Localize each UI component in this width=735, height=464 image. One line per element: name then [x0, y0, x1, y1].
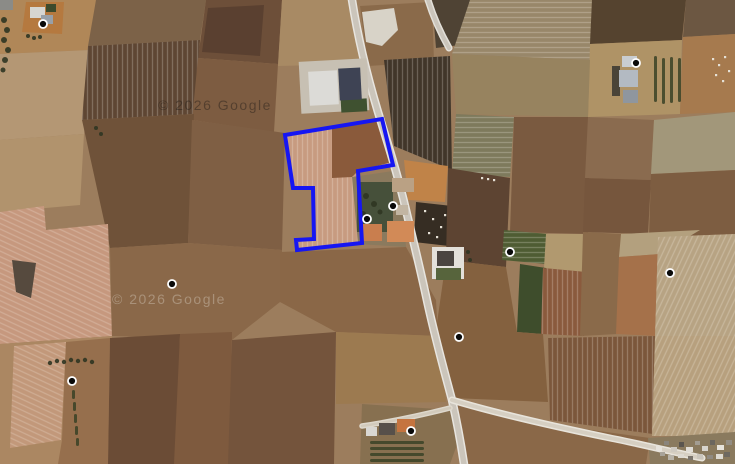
- field-patch: [188, 120, 285, 250]
- field-patch: [452, 54, 590, 117]
- vegetation-row: [670, 57, 673, 103]
- ground-speck: [432, 218, 434, 220]
- building: [0, 0, 13, 10]
- building: [437, 251, 454, 266]
- ground-speck: [724, 56, 726, 58]
- map-marker[interactable]: [666, 269, 674, 277]
- ground-speck: [722, 80, 724, 82]
- field-patch: [651, 112, 735, 174]
- tree: [1, 17, 7, 23]
- town-building: [679, 442, 684, 447]
- map-canvas[interactable]: © 2026 Google© 2026 Google: [0, 0, 735, 464]
- field-patch: [510, 117, 590, 234]
- field-furrow-texture: [655, 234, 735, 336]
- building: [436, 268, 461, 280]
- ground-speck: [444, 214, 446, 216]
- vegetation-row: [76, 438, 79, 446]
- ground-speck: [493, 179, 495, 181]
- ground-speck: [712, 58, 714, 60]
- town-building: [688, 456, 693, 460]
- tree: [5, 47, 11, 53]
- town-building: [664, 441, 669, 445]
- field-patch: [680, 34, 735, 114]
- map-marker[interactable]: [506, 248, 514, 256]
- field-patch: [0, 134, 84, 212]
- field-patch: [414, 202, 452, 246]
- field-patch: [683, 0, 735, 37]
- field-patch: [544, 234, 588, 272]
- map-marker[interactable]: [363, 215, 371, 223]
- tree: [32, 36, 36, 40]
- building: [619, 70, 638, 87]
- town-building: [671, 447, 677, 452]
- field-patch: [580, 232, 621, 336]
- vegetation-row: [72, 390, 75, 399]
- ground-speck: [428, 232, 430, 234]
- building: [366, 427, 377, 436]
- tree: [76, 359, 80, 363]
- tree: [62, 360, 66, 364]
- map-marker[interactable]: [455, 333, 463, 341]
- field-furrow-texture: [10, 342, 66, 448]
- field-patch: [0, 50, 90, 140]
- map-marker[interactable]: [39, 20, 47, 28]
- tree: [466, 250, 470, 254]
- field-patch: [174, 332, 232, 464]
- tree: [26, 34, 30, 38]
- field-patch: [336, 332, 446, 404]
- building: [362, 224, 382, 241]
- field-furrow-texture: [541, 268, 586, 336]
- field-patch: [278, 0, 360, 66]
- vegetation-row: [73, 402, 76, 411]
- map-marker[interactable]: [632, 59, 640, 67]
- field-patch: [202, 5, 264, 56]
- building: [612, 66, 620, 96]
- tree: [1, 37, 7, 43]
- tree: [1, 68, 6, 73]
- tree: [4, 27, 10, 33]
- town-building: [660, 452, 665, 456]
- town-building: [726, 440, 732, 445]
- tree: [371, 201, 377, 207]
- vegetation-row: [662, 58, 665, 104]
- tree: [38, 35, 42, 39]
- town-building: [686, 447, 693, 452]
- tree: [99, 132, 103, 136]
- town-building: [695, 441, 700, 445]
- field-patch: [649, 170, 735, 237]
- ground-speck: [715, 74, 717, 76]
- field-furrow-texture: [502, 230, 548, 264]
- map-marker[interactable]: [407, 427, 415, 435]
- field-patch: [616, 254, 660, 336]
- vegetation-row: [370, 453, 424, 456]
- town-building: [716, 454, 723, 459]
- field-furrow-texture: [548, 336, 658, 434]
- tree: [48, 361, 52, 365]
- building: [387, 221, 414, 242]
- ground-speck: [487, 178, 489, 180]
- field-patch: [192, 58, 278, 132]
- town-building: [707, 455, 713, 459]
- satellite-map-view[interactable]: © 2026 Google© 2026 Google: [0, 0, 735, 464]
- building: [379, 423, 395, 435]
- ground-speck: [424, 210, 426, 212]
- ground-speck: [728, 70, 730, 72]
- map-marker[interactable]: [68, 377, 76, 385]
- building: [392, 178, 414, 192]
- town-building: [702, 446, 708, 451]
- tree: [69, 358, 73, 362]
- vegetation-row: [654, 56, 657, 102]
- field-patch: [585, 117, 654, 180]
- tree: [468, 258, 472, 262]
- building: [341, 98, 368, 112]
- ground-speck: [481, 177, 483, 179]
- vegetation-row: [75, 426, 78, 435]
- ground-speck: [440, 226, 442, 228]
- tree: [55, 359, 59, 363]
- town-building: [710, 440, 715, 445]
- google-attribution-watermark: © 2026 Google: [158, 97, 272, 113]
- tree: [363, 193, 369, 199]
- ground-speck: [436, 236, 438, 238]
- town-building: [656, 446, 662, 451]
- tree: [90, 360, 94, 364]
- field-patch: [228, 332, 336, 464]
- building: [338, 67, 362, 100]
- town-building: [678, 454, 684, 458]
- field-furrow-texture: [652, 336, 735, 436]
- building: [623, 90, 638, 103]
- town-building: [717, 445, 724, 450]
- google-attribution-watermark: © 2026 Google: [112, 291, 226, 307]
- field-patch: [88, 0, 206, 46]
- tree: [2, 57, 8, 63]
- map-marker[interactable]: [389, 202, 397, 210]
- vegetation-row: [74, 414, 77, 423]
- field-patch: [58, 338, 110, 464]
- vegetation-row: [370, 441, 424, 444]
- tree: [378, 210, 383, 215]
- field-furrow-texture: [452, 114, 514, 177]
- tree: [83, 358, 87, 362]
- vegetation-row: [370, 459, 424, 462]
- field-patch: [583, 178, 651, 234]
- town-building: [724, 452, 730, 457]
- building: [308, 70, 339, 105]
- tree: [94, 126, 98, 130]
- field-patch: [108, 334, 180, 464]
- vegetation-row: [370, 447, 424, 450]
- field-furrow-texture: [452, 0, 592, 60]
- building: [46, 4, 56, 12]
- town-building: [697, 454, 703, 459]
- map-marker[interactable]: [168, 280, 176, 288]
- vegetation-row: [678, 58, 681, 102]
- ground-speck: [718, 64, 720, 66]
- field-patch: [590, 0, 686, 44]
- town-building: [668, 455, 674, 460]
